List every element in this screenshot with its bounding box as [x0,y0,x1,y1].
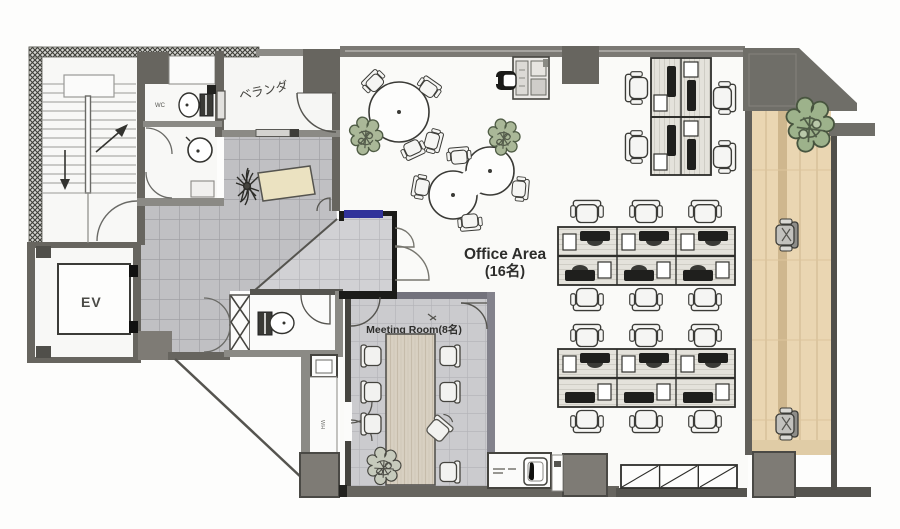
svg-text:WH: WH [319,420,325,429]
svg-text:EV: EV [81,294,102,310]
svg-text:(16名): (16名) [485,262,525,280]
svg-text:WC: WC [155,103,166,109]
svg-text:Office Area: Office Area [464,246,547,263]
